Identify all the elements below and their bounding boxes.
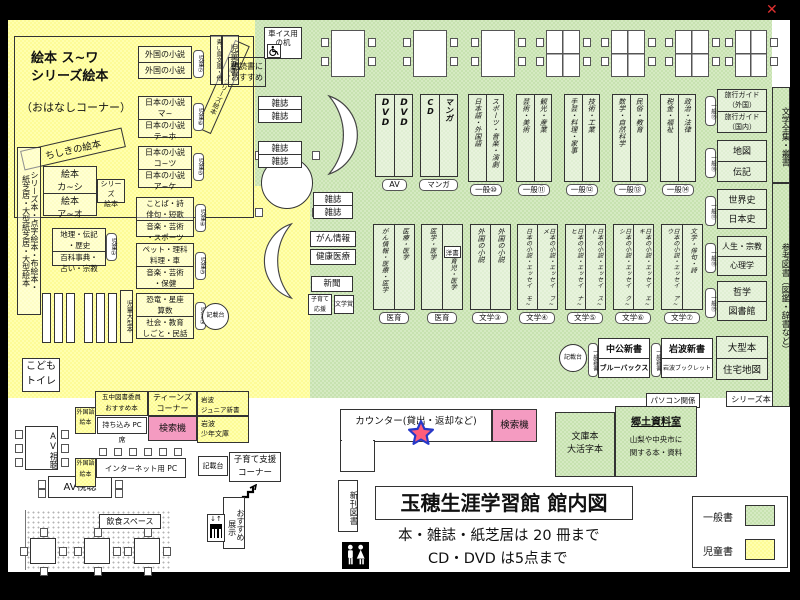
teens-corner: ティーンズコーナー — [148, 391, 197, 416]
bookcase — [42, 293, 51, 343]
badge-general-19: 一般⑲ — [705, 288, 716, 318]
legend-general-label: 一般書 — [703, 509, 733, 524]
av-viewing-table: AV視聴 — [25, 426, 58, 470]
shelf-bungaku-4: 日本の小説・エッセイ モ~日本の小説・エッセイ フ~メ — [517, 224, 558, 310]
legend-children-swatch — [745, 539, 775, 560]
shelf-general-12: 手芸・料理・家事技術・工業 — [564, 94, 600, 182]
shelf-maps-biography: 地図伝記 — [717, 140, 767, 182]
label-series-books: シリーズ本 — [726, 391, 776, 407]
writing-stand-entrance: 記載台 — [198, 456, 228, 476]
label-manga: マンガ — [419, 179, 458, 191]
bookcase — [66, 293, 75, 343]
shelf-geography-encyclopedia: 地理・伝記・歴史 百科事典・占い・宗教 — [52, 228, 106, 266]
shelf-general-10: 日本語・外国語スポーツ・音楽・演劇 — [468, 94, 504, 182]
label-general-12: 一般⑫ — [566, 184, 598, 196]
shelf-bungaku-7: 日本の小説・エッセイ ア~ウ文学・俳句・詩 — [661, 224, 703, 310]
shelf-literature-collections: 文学全集・叢書 — [772, 87, 790, 183]
label-iiku-2: 医育 — [427, 312, 457, 324]
picturebook-su-wa-label: 絵本 ス~ワ — [31, 47, 98, 66]
reading-table — [611, 30, 645, 77]
bookcase — [96, 293, 105, 343]
cafe-table — [30, 538, 56, 564]
map-title: 玉穂生涯学習館 館内図 — [375, 486, 633, 520]
loan-limit-note-av: CD・DVD は5点まで — [428, 547, 648, 568]
label-av: AV — [382, 179, 407, 191]
badge-shinsho-2: 一般新書 — [651, 343, 661, 377]
reading-table — [735, 30, 767, 77]
shelf-reference-books: 参考図書（図鑑・辞書など） — [772, 183, 790, 407]
shelf-series-picturebooks-small: シリーズ絵本 — [97, 179, 125, 203]
shelf-dinosaurs-society: 恐竜・星座算数 社会・教育しごと・民話 — [136, 293, 194, 339]
shelf-foreign-novels-children: 外国の小説 外国の小説 — [138, 46, 192, 79]
cafe-table — [134, 538, 160, 564]
wheelchair-desk: 車イス用の机 — [264, 27, 302, 59]
shelf-aoitori-bunko: 青い鳥文庫・他 — [210, 35, 222, 85]
shelf-travel-guides: 旅行ガイド（外国） 旅行ガイド（国内） — [717, 89, 767, 133]
badge-jido-5: 児童⑤ — [193, 153, 204, 181]
label-bungaku-5: 文学⑤ — [567, 312, 603, 324]
bookcase — [54, 293, 63, 343]
childcare-support-shelf: 子育て応援 — [308, 294, 332, 315]
shelf-bungaku-6: 日本の小説・エッセイ ク~シ日本の小説・エッセイ エ~キ — [613, 224, 654, 310]
badge-jido-1: 児童① — [106, 233, 117, 261]
shelf-general-13: 数学・自然科学民俗・教育 — [612, 94, 648, 182]
badge-jido-7: 児童⑦ — [193, 50, 204, 78]
shelf-history: 世界史日本史 — [717, 189, 767, 229]
reading-table — [481, 30, 515, 77]
badge-jido-6: 児童⑥ — [193, 103, 204, 131]
label-general-14: 一般⑭ — [662, 184, 694, 196]
childcare-support-corner: 子育て支援コーナー — [229, 452, 281, 482]
search-kiosk: 検索機 — [492, 409, 537, 442]
magazine-shelf: 雑誌雑誌 — [258, 141, 302, 168]
shelf-picturebooks-ka: 絵本カ~シ 絵本ア~オ — [43, 166, 97, 216]
reading-table — [675, 30, 709, 77]
shelf-general-11: 芸術・美術観光・産業 — [516, 94, 552, 182]
internet-pc-desk: インターネット用 PC — [96, 458, 186, 478]
badge-general-15: 一般⑮ — [705, 96, 716, 126]
wheelchair-icon — [267, 44, 281, 58]
reading-table — [546, 30, 580, 77]
legend-general-swatch — [745, 505, 775, 526]
restroom-icon — [342, 542, 369, 569]
eating-space-label: 飲食スペース — [99, 514, 161, 529]
shelf-large-books: 大型本 住宅地図 — [716, 336, 768, 380]
shelf-philosophy: 哲学図書館 — [717, 281, 767, 321]
magazine-shelf: 雑誌雑誌 — [313, 192, 353, 219]
close-icon[interactable]: ✕ — [766, 2, 778, 18]
yosho-label: 洋書 — [444, 246, 461, 258]
shelf-words-poetry: ことば・詩俳句・短歌 音楽・芸術・スポーツ — [136, 197, 194, 237]
health-medical-shelf: 健康医療 — [310, 249, 356, 265]
shelf-bungaku-5: 日本の小説・エッセイ ナ~ヒ日本の小説・エッセイ ス~ト — [565, 224, 606, 310]
loan-limit-note-books: 本・雑誌・紙芝居は 20 冊まで — [398, 524, 668, 545]
shelf-general-14: 税金・福祉政治・法律 — [660, 94, 696, 182]
badge-jido-4: 児童④ — [195, 204, 206, 232]
shelf-cd-manga: CDマンガ — [420, 94, 458, 177]
shelf-pets-cooking: ペット・理科料理・車 音楽・芸術・保健 — [136, 243, 194, 289]
bookcase — [84, 293, 93, 343]
elevator-icon: ↓↑ — [207, 514, 225, 542]
badge-general-17: 一般⑰ — [705, 196, 716, 226]
foreign-language-picturebooks: 外国語絵本 — [75, 407, 96, 434]
label-bungaku-3: 文学③ — [472, 312, 508, 324]
label-general-10: 一般⑩ — [470, 184, 502, 196]
label-general-13: 一般⑬ — [614, 184, 646, 196]
gochu-recommend-shelf: 五中図書委員おすすめ本 — [95, 391, 148, 416]
writing-stand-general: 記載台 — [559, 344, 587, 372]
shelf-life-religion: 人生・宗教心理学 — [717, 236, 767, 276]
series-picturebook-label: シリーズ絵本 — [31, 65, 108, 84]
legend-children-label: 児童書 — [703, 543, 733, 558]
newspaper-shelf: 新聞 — [311, 276, 353, 292]
shelf-dvd: DVDDVD — [375, 94, 413, 177]
paperback-room: 文庫本大活字本 — [555, 412, 615, 477]
current-location-star-icon — [408, 420, 434, 446]
literary-award-shelf: 文学賞 — [334, 295, 354, 314]
writing-stand-children: 記載台 — [202, 303, 229, 330]
reading-table — [413, 30, 447, 77]
cafe-table — [84, 538, 110, 564]
magazine-shelf: 雑誌雑誌 — [258, 96, 302, 123]
badge-shinsho-1: 一般新書 — [588, 343, 598, 377]
label-bungaku-6: 文学⑥ — [615, 312, 651, 324]
recommended-display-shelf: おすすめ展示 — [223, 497, 245, 549]
cancer-info-shelf: がん情報 — [310, 231, 356, 247]
iwanami-shonen-shelf: 岩波少年文庫 — [197, 416, 249, 443]
badge-general-18: 一般⑱ — [705, 243, 716, 273]
shelf-bungaku-3: 外国の小説外国の小説 — [470, 224, 511, 310]
shelf-series-braille-kamishibai: シリーズ本・点字絵本・布絵本・紙芝居・大型紙芝居・大型絵本 — [17, 147, 41, 315]
label-bungaku-7: 文学⑦ — [664, 312, 700, 324]
kids-toilet: こどもトイレ — [22, 358, 60, 392]
shelf-iwanami-shinsho: 岩波新書 岩波ブックレット — [661, 338, 713, 378]
morning-reading-recommend: 朝読書におすすめ — [228, 57, 266, 87]
shelf-chuko-shinsho: 中公新書 ブルーバックス — [598, 338, 650, 378]
reading-table — [331, 30, 365, 77]
shelf-medical-2: 医学・医学 洋書 育児・医学 — [421, 224, 463, 310]
foreign-language-picturebooks: 外国語絵本 — [75, 458, 96, 487]
label-iiku-1: 医育 — [379, 312, 409, 324]
label-bungaku-4: 文学④ — [519, 312, 555, 324]
badge-general-16: 一般⑯ — [705, 148, 716, 178]
label-general-11: 一般⑪ — [518, 184, 550, 196]
search-kiosk: 検索機 — [148, 416, 197, 441]
bookcase — [108, 293, 117, 343]
shelf-medical-1: がん情報・医療・医学医療・医学 — [373, 224, 415, 310]
curved-shelf — [260, 219, 298, 303]
legend: 一般書 児童書 — [692, 496, 788, 568]
new-books-shelf: 新刊図書 — [338, 480, 358, 532]
curved-shelf — [322, 93, 362, 177]
shelf-japanese-novels-ko: 日本の小説コ~ツ 日本の小説ア~ケ — [138, 146, 192, 188]
storytime-corner-label: （おはなしコーナー） — [21, 99, 131, 115]
shelf-children-large-books: 児童大型本 — [120, 290, 133, 343]
badge-jido-3: 児童③ — [195, 252, 206, 280]
shelf-japanese-novels-ma: 日本の小説マ~ 日本の小説テ~ホ — [138, 96, 192, 138]
byod-pc-seats: 持ち込み PC 席 — [97, 417, 147, 434]
local-materials-room: 郷土資料室 山梨や中央市に 関する本・資料 — [615, 406, 697, 477]
iwanami-junior-shelf: 岩波ジュニア新書 — [197, 391, 249, 416]
